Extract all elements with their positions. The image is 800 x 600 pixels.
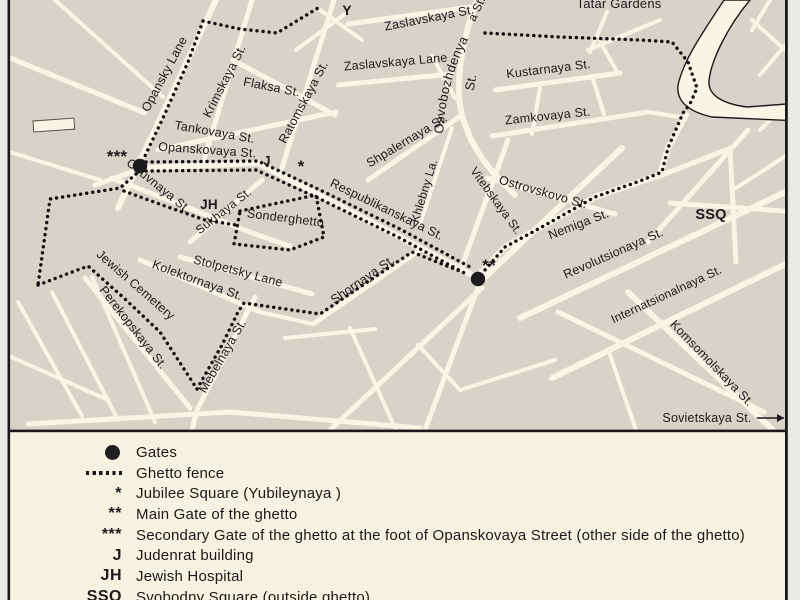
legend-row-fence: Ghetto fence — [10, 463, 784, 484]
street-label: St. — [462, 73, 480, 92]
one-asterisk-symbol: * — [10, 485, 122, 503]
two-asterisk-symbol: ** — [10, 505, 122, 523]
three-asterisk-symbol: *** — [10, 526, 122, 544]
street-label: Tatar Gardens — [577, 0, 662, 11]
map-legend: Gates Ghetto fence * Jubilee Square (Yub… — [10, 433, 784, 600]
map-marker-label: J — [263, 153, 270, 168]
svobodny-square-symbol: SSQ — [10, 588, 122, 600]
legend-label: Svobodny Square (outside ghetto) — [136, 589, 370, 600]
gate-dot-icon — [105, 445, 120, 460]
ghetto-fence-icon — [86, 471, 122, 474]
jewish-hospital-symbol: JH — [10, 567, 122, 585]
building-outline — [33, 118, 75, 132]
legend-row-jubilee-square: * Jubilee Square (Yubileynaya ) — [10, 483, 784, 504]
legend-row-svobodny-square: SSQ Svobodny Square (outside ghetto) — [10, 587, 784, 600]
map-marker-label: SSQ — [695, 207, 726, 223]
legend-label: Gates — [136, 444, 177, 461]
legend-label: Ghetto fence — [136, 465, 224, 482]
legend-row-secondary-gate: *** Secondary Gate of the ghetto at the … — [10, 525, 784, 546]
map-marker-label: ** — [482, 256, 496, 275]
legend-label: Jubilee Square (Yubileynaya ) — [136, 485, 341, 502]
judenrat-symbol: J — [10, 547, 122, 565]
frame-right-line — [785, 0, 788, 600]
map-figure: Tatar GardensYZaslavskaya St.Zaslavskaya… — [0, 0, 800, 600]
legend-row-gates: Gates — [10, 442, 784, 463]
legend-row-jewish-hospital: JH Jewish Hospital — [10, 566, 784, 587]
legend-row-judenrat: J Judenrat building — [10, 545, 784, 566]
legend-label: Main Gate of the ghetto — [136, 506, 297, 523]
map-marker-label: Y — [342, 2, 352, 18]
legend-label: Jewish Hospital — [136, 568, 243, 585]
legend-row-main-gate: ** Main Gate of the ghetto — [10, 504, 784, 525]
map-marker-label: * — [298, 157, 305, 176]
street-label: Sovietskaya St. — [662, 411, 751, 425]
legend-label: Judenrat building — [136, 547, 254, 564]
map-marker-label: *** — [107, 147, 128, 166]
map-legend-divider — [8, 430, 788, 433]
legend-label: Secondary Gate of the ghetto at the foot… — [136, 527, 745, 544]
